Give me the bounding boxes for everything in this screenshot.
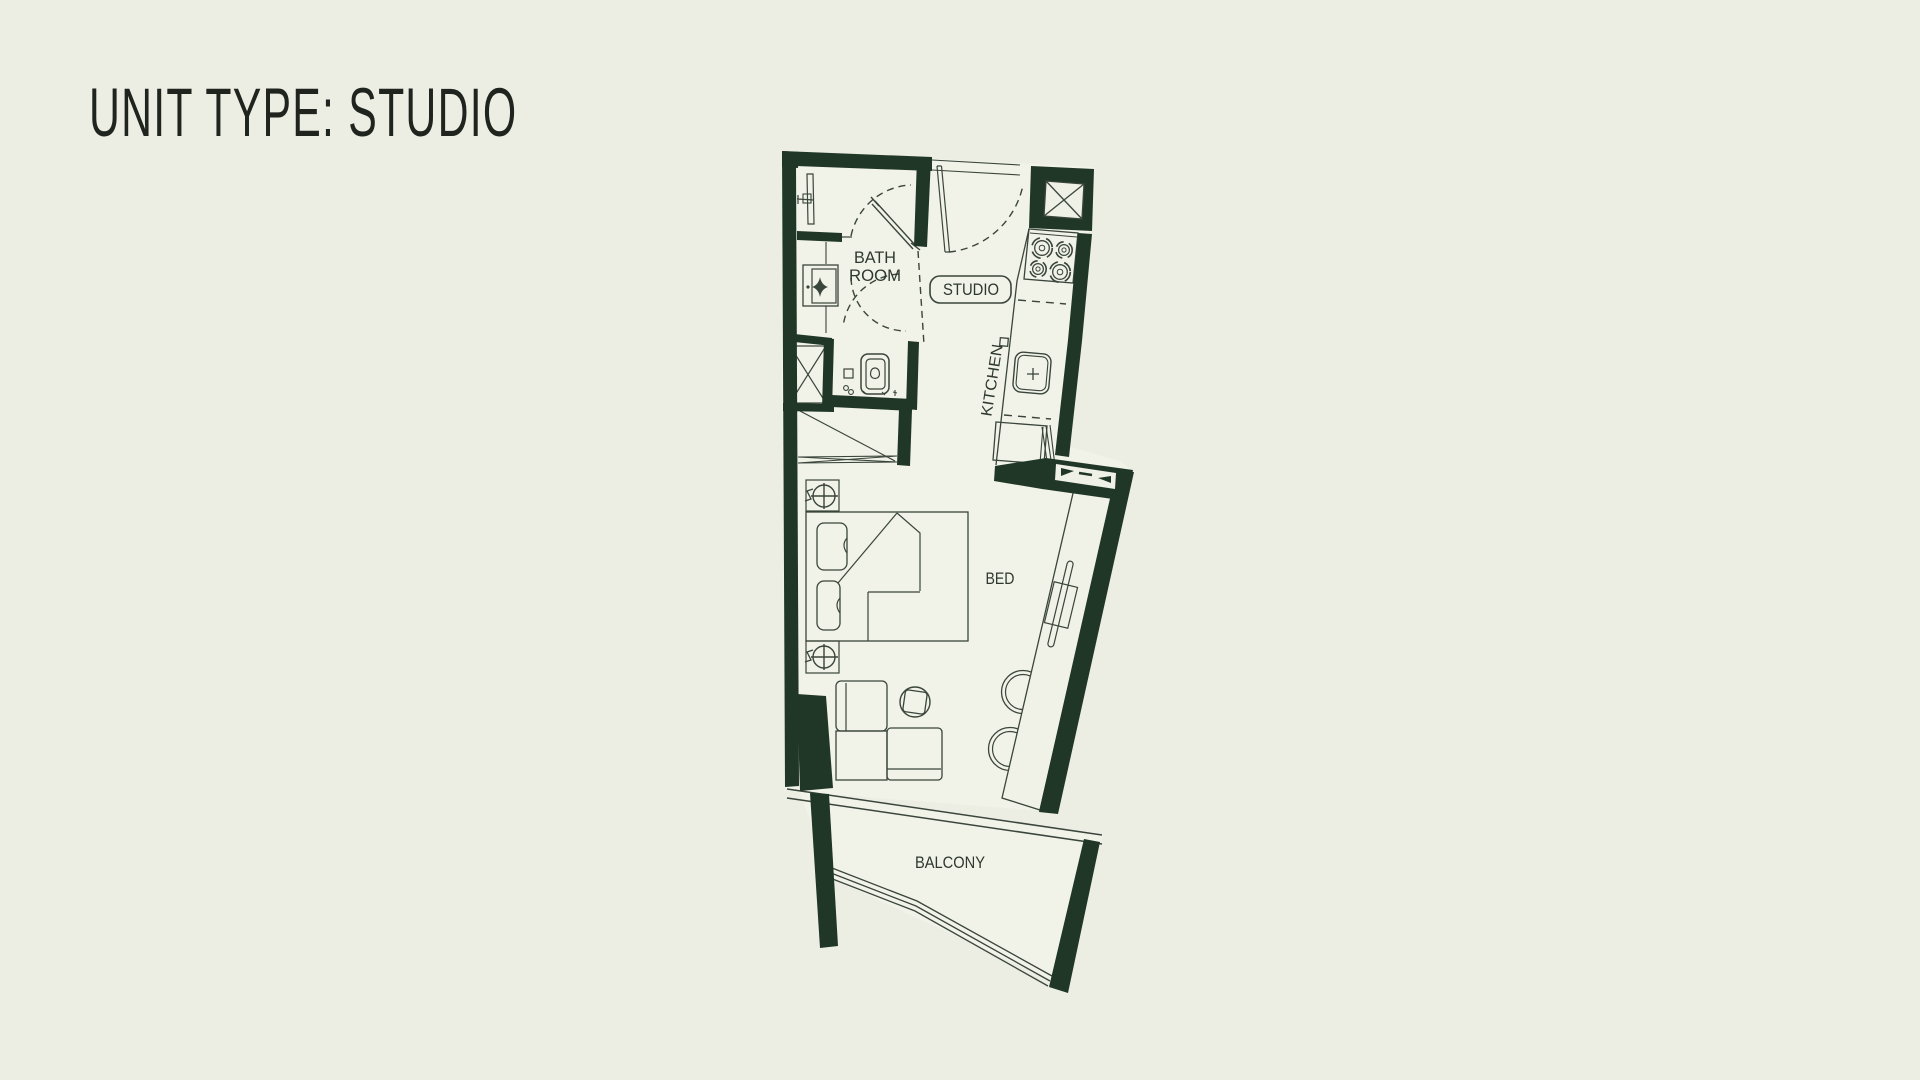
- svg-text:BATH: BATH: [854, 249, 896, 267]
- svg-text:BALCONY: BALCONY: [915, 854, 985, 872]
- svg-text:BED: BED: [986, 570, 1015, 588]
- svg-text:STUDIO: STUDIO: [943, 281, 999, 299]
- svg-text:ROOM: ROOM: [849, 267, 901, 285]
